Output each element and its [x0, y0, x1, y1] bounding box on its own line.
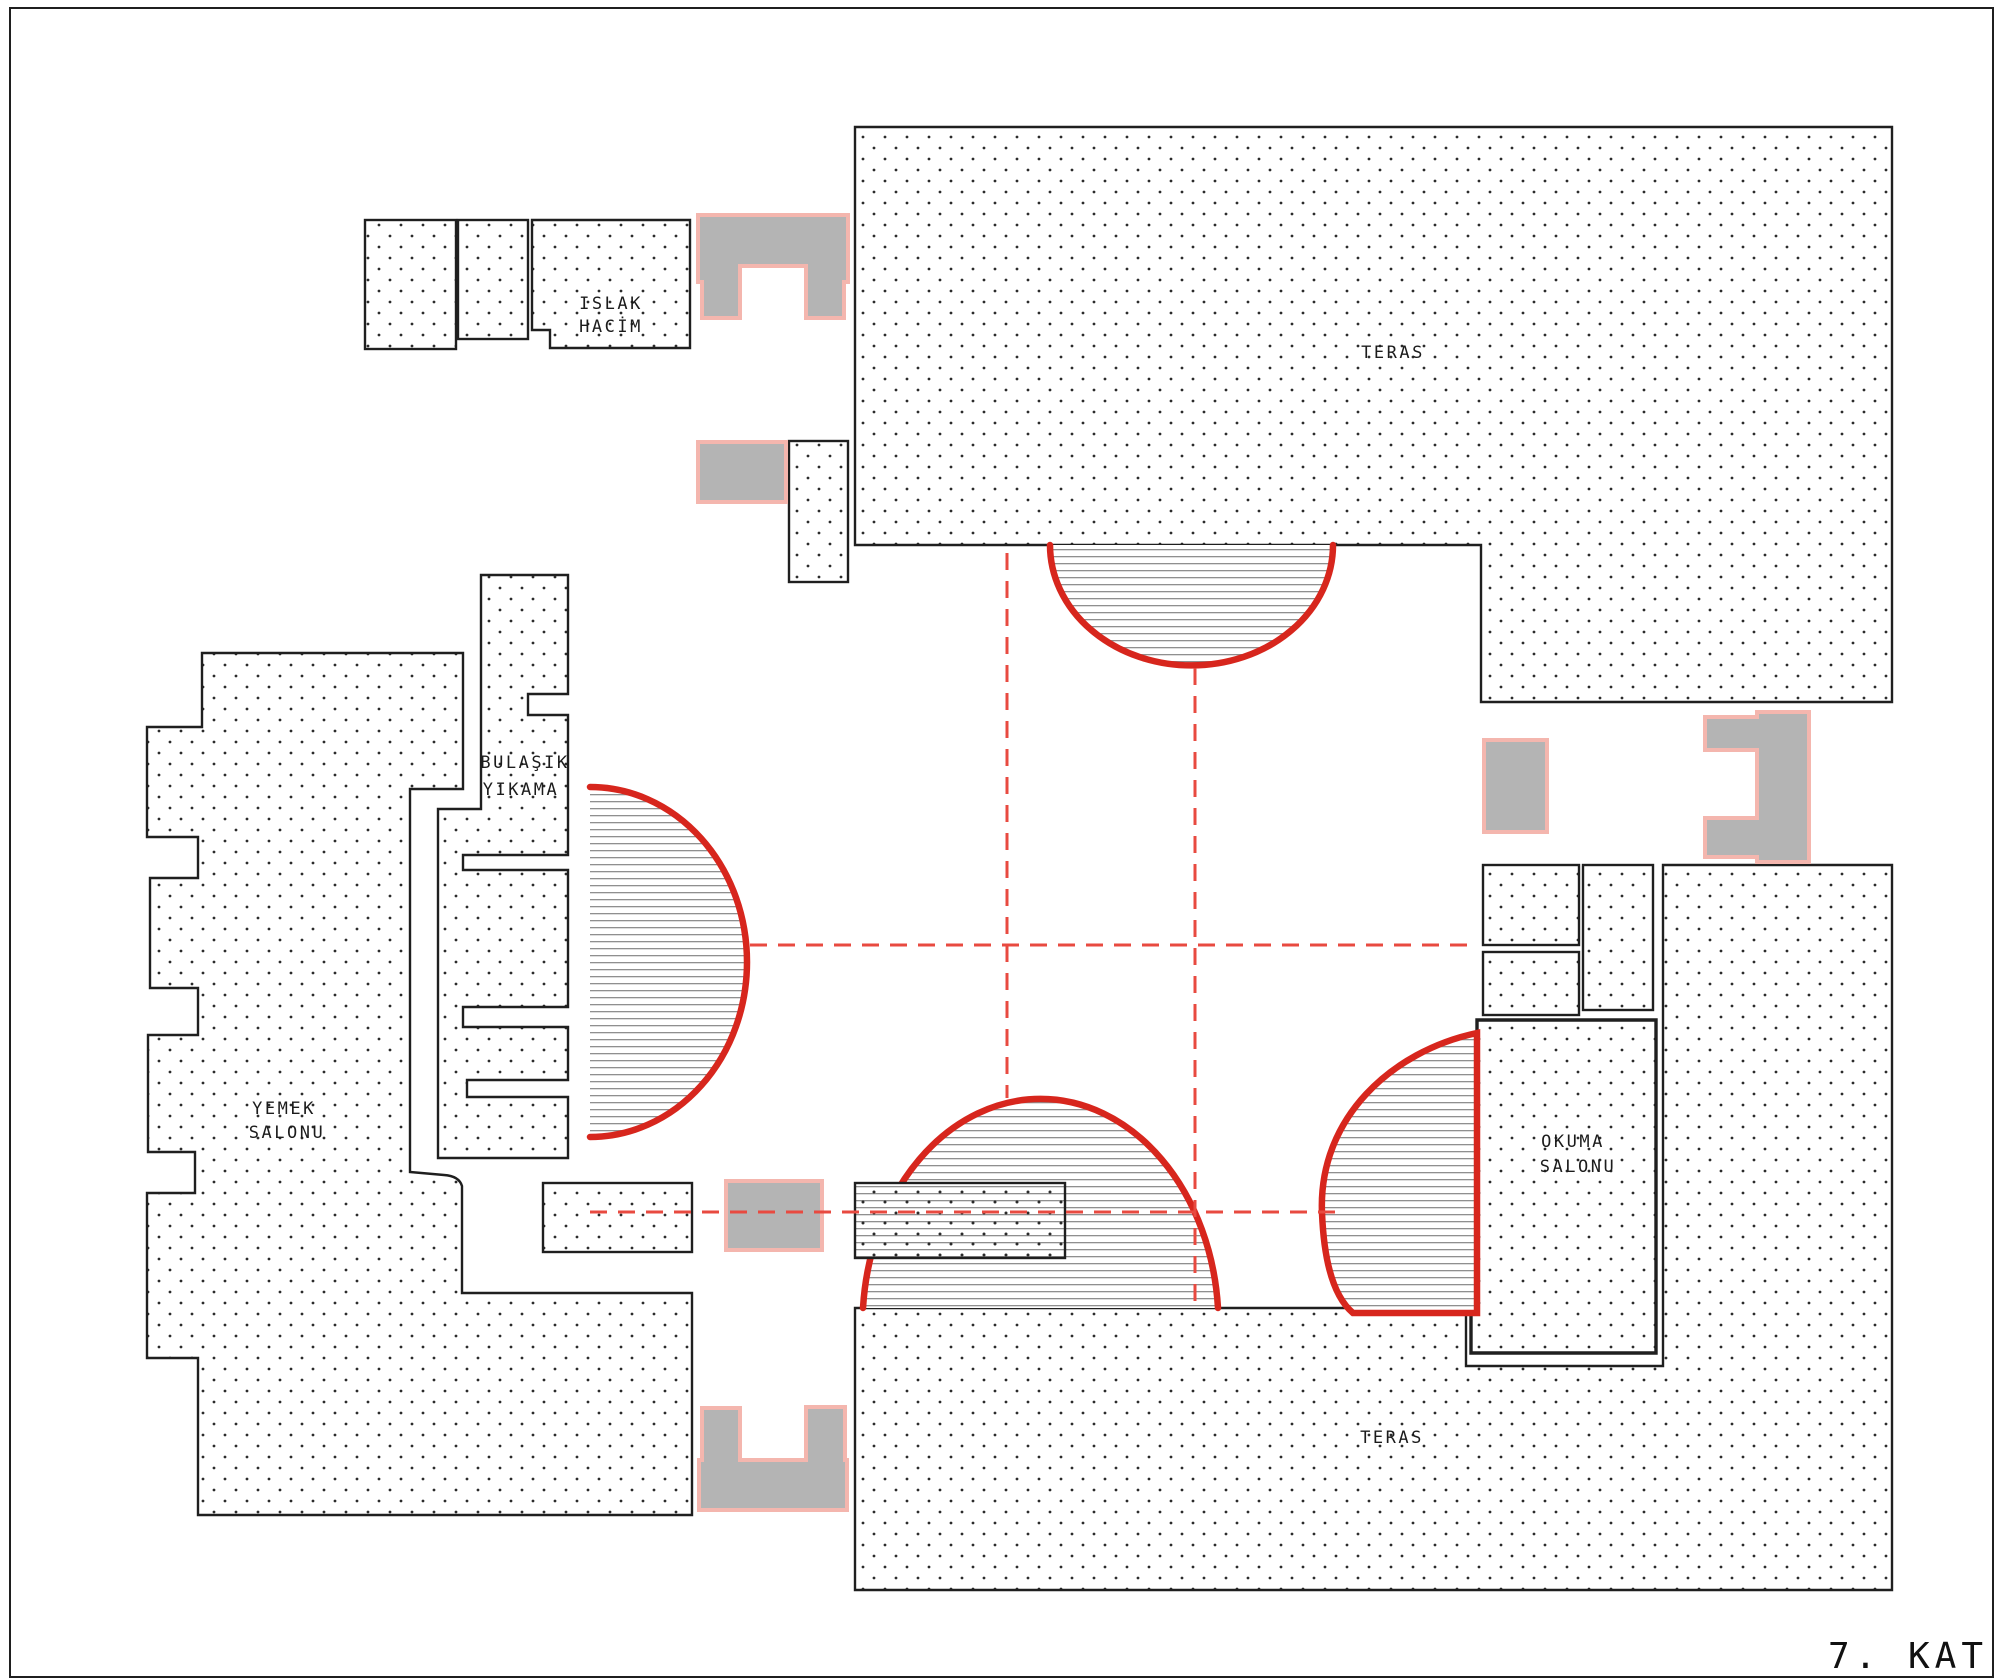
label-teras-top: TERAS [1361, 343, 1425, 363]
okuma-cell-a [1483, 865, 1579, 945]
dome-right-fill [1322, 1033, 1477, 1313]
dome-top-fill [1050, 545, 1333, 665]
label-yemek-line1: YEMEK [252, 1099, 316, 1119]
label-islak-line1: ISLAK [579, 294, 643, 314]
floor-plan-canvas: ISLAK HACİM TERAS BULAŞIK YIKAMA YEMEK S… [0, 0, 2000, 1680]
elevator-top [698, 442, 786, 502]
label-islak-line2: HACİM [579, 316, 643, 337]
okuma-cell-b [1483, 952, 1579, 1015]
elevator-center [726, 1181, 822, 1250]
okuma-cell-c [1583, 865, 1653, 1010]
stair-right [1705, 712, 1809, 862]
room-islak-b [458, 220, 528, 339]
dome-left-fill [590, 787, 747, 1137]
stair-bottom [699, 1407, 847, 1510]
floor-title: 7. KAT [1828, 1636, 1988, 1677]
room-islak-a [365, 220, 456, 349]
label-okuma-line2: SALONU [1540, 1157, 1616, 1177]
elevator-right [1484, 740, 1547, 832]
shaft-top-center [789, 441, 848, 582]
label-bulasik-line2: YIKAMA [483, 780, 559, 800]
label-okuma-line1: OKUMA [1541, 1132, 1605, 1152]
dome-bottom-inner-room [855, 1183, 1065, 1258]
label-bulasik-line1: BULAŞIK [480, 753, 569, 773]
room-teras-top [855, 127, 1892, 702]
room-okuma-salonu [1471, 1020, 1656, 1353]
stair-top [698, 215, 848, 318]
floor-plan-drawing: ISLAK HACİM TERAS BULAŞIK YIKAMA YEMEK S… [0, 0, 2000, 1680]
label-yemek-line2: SALONU [249, 1123, 325, 1143]
room-small-center-left [543, 1183, 692, 1252]
label-teras-bottom: TERAS [1360, 1428, 1424, 1448]
